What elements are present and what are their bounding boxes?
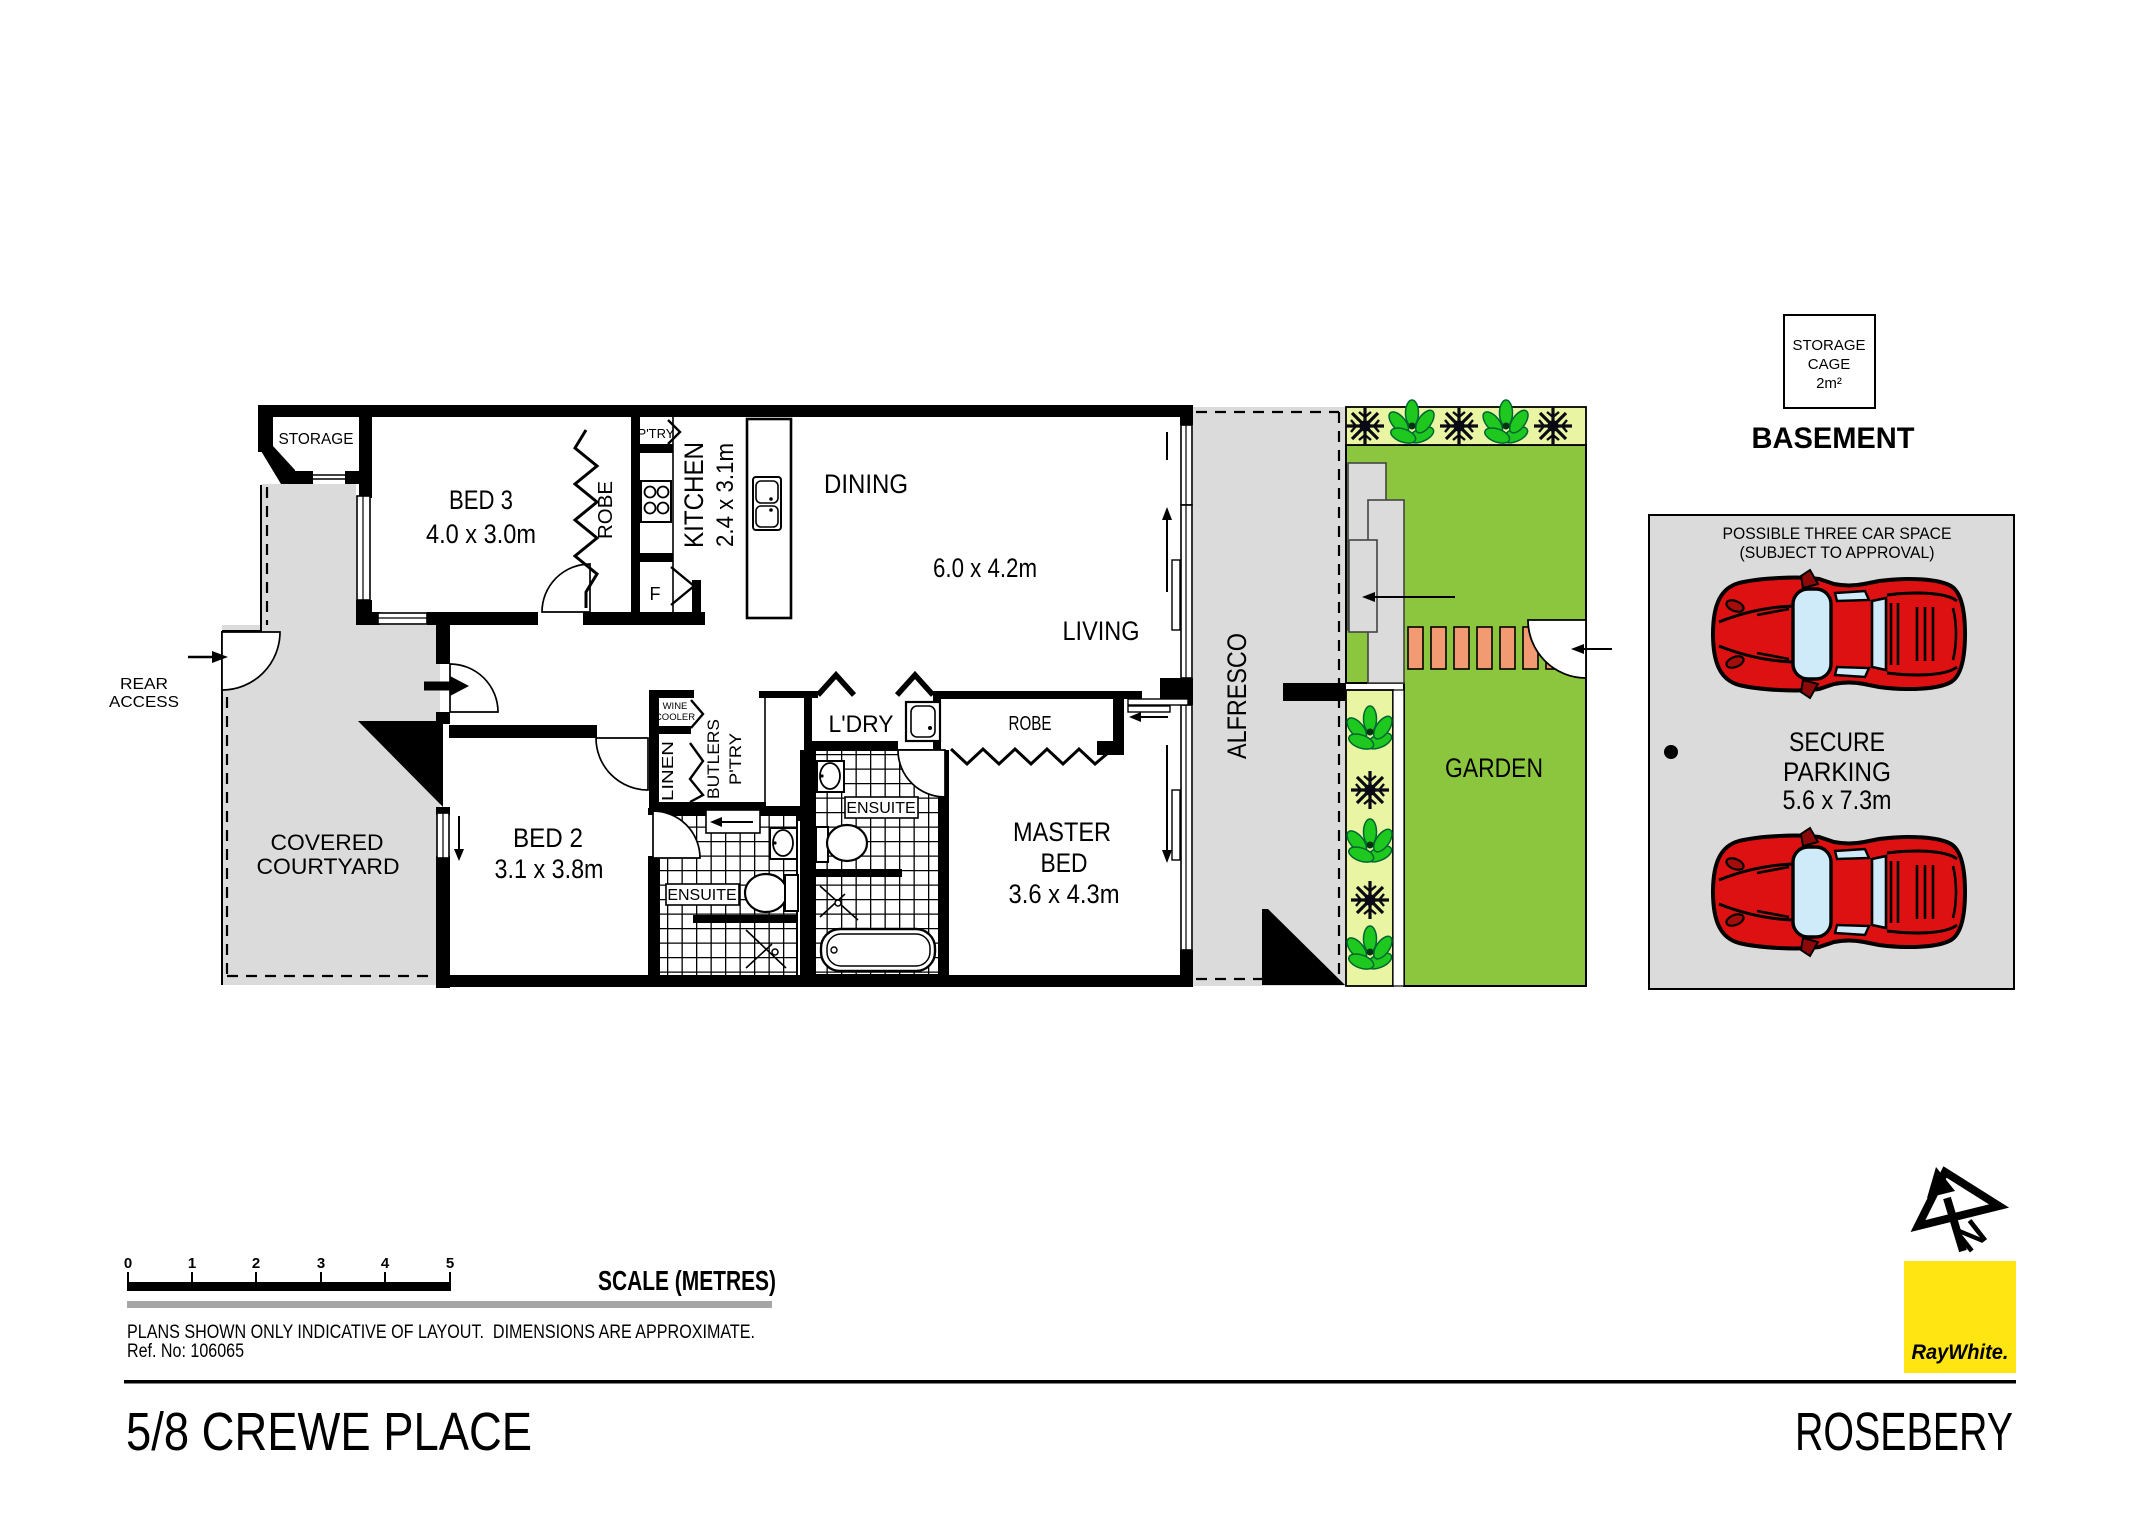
svg-text:BED: BED <box>1041 848 1088 878</box>
svg-text:SECURE: SECURE <box>1789 727 1885 757</box>
svg-text:2m²: 2m² <box>1816 375 1842 392</box>
svg-text:GARDEN: GARDEN <box>1445 753 1543 783</box>
svg-text:POSSIBLE THREE CAR SPACE: POSSIBLE THREE CAR SPACE <box>1723 524 1952 543</box>
svg-text:REAR: REAR <box>120 676 168 693</box>
svg-text:ENSUITE: ENSUITE <box>846 800 915 817</box>
svg-text:5/8 CREWE PLACE: 5/8 CREWE PLACE <box>126 1402 532 1462</box>
svg-text:ACCESS: ACCESS <box>109 694 179 711</box>
svg-text:F: F <box>650 584 661 604</box>
svg-text:(SUBJECT TO APPROVAL): (SUBJECT TO APPROVAL) <box>1740 543 1935 562</box>
svg-text:STORAGE: STORAGE <box>279 431 354 448</box>
svg-text:WINE: WINE <box>663 701 688 712</box>
svg-text:KITCHEN: KITCHEN <box>679 442 709 548</box>
svg-text:0: 0 <box>124 1255 132 1272</box>
svg-text:MASTER: MASTER <box>1013 817 1111 847</box>
svg-text:ALFRESCO: ALFRESCO <box>1222 633 1252 759</box>
svg-text:3: 3 <box>317 1255 325 1272</box>
svg-text:2: 2 <box>252 1255 260 1272</box>
svg-text:LIVING: LIVING <box>1063 616 1140 646</box>
svg-text:ROBE: ROBE <box>595 481 617 539</box>
svg-text:PLANS SHOWN ONLY INDICATIVE OF: PLANS SHOWN ONLY INDICATIVE OF LAYOUT. D… <box>127 1322 755 1343</box>
svg-text:ROSEBERY: ROSEBERY <box>1795 1402 2013 1462</box>
svg-text:6.0 x 4.2m: 6.0 x 4.2m <box>933 553 1037 583</box>
svg-text:BASEMENT: BASEMENT <box>1752 422 1915 455</box>
svg-text:COVERED: COVERED <box>271 830 384 855</box>
svg-text:5.6 x 7.3m: 5.6 x 7.3m <box>1783 785 1892 815</box>
svg-text:P'TRY: P'TRY <box>638 426 675 441</box>
svg-text:P'TRY: P'TRY <box>726 733 745 785</box>
svg-text:3.6 x 4.3m: 3.6 x 4.3m <box>1009 879 1120 909</box>
svg-text:1: 1 <box>188 1255 196 1272</box>
svg-text:4: 4 <box>381 1255 390 1272</box>
svg-text:ROBE: ROBE <box>1009 713 1052 735</box>
svg-text:2.4 x 3.1m: 2.4 x 3.1m <box>712 443 739 547</box>
svg-text:BED 2: BED 2 <box>513 823 583 853</box>
svg-text:PARKING: PARKING <box>1783 757 1891 787</box>
svg-text:3.1 x 3.8m: 3.1 x 3.8m <box>495 854 604 884</box>
svg-text:BUTLERS: BUTLERS <box>704 719 723 799</box>
svg-text:ENSUITE: ENSUITE <box>667 887 736 904</box>
svg-text:BED 3: BED 3 <box>449 485 513 515</box>
svg-text:Ref. No: 106065: Ref. No: 106065 <box>127 1341 244 1362</box>
svg-text:STORAGE: STORAGE <box>1792 337 1865 354</box>
svg-text:4.0 x 3.0m: 4.0 x 3.0m <box>426 519 536 549</box>
svg-text:COURTYARD: COURTYARD <box>257 854 400 879</box>
svg-text:5: 5 <box>446 1255 454 1272</box>
svg-text:DINING: DINING <box>824 469 908 499</box>
svg-text:RayWhite.: RayWhite. <box>1912 1341 2009 1364</box>
svg-text:COOLER: COOLER <box>655 712 695 723</box>
svg-text:L'DRY: L'DRY <box>829 711 894 738</box>
svg-text:LINEN: LINEN <box>660 741 677 801</box>
svg-text:CAGE: CAGE <box>1808 356 1851 373</box>
svg-text:SCALE (METRES): SCALE (METRES) <box>598 1265 776 1296</box>
